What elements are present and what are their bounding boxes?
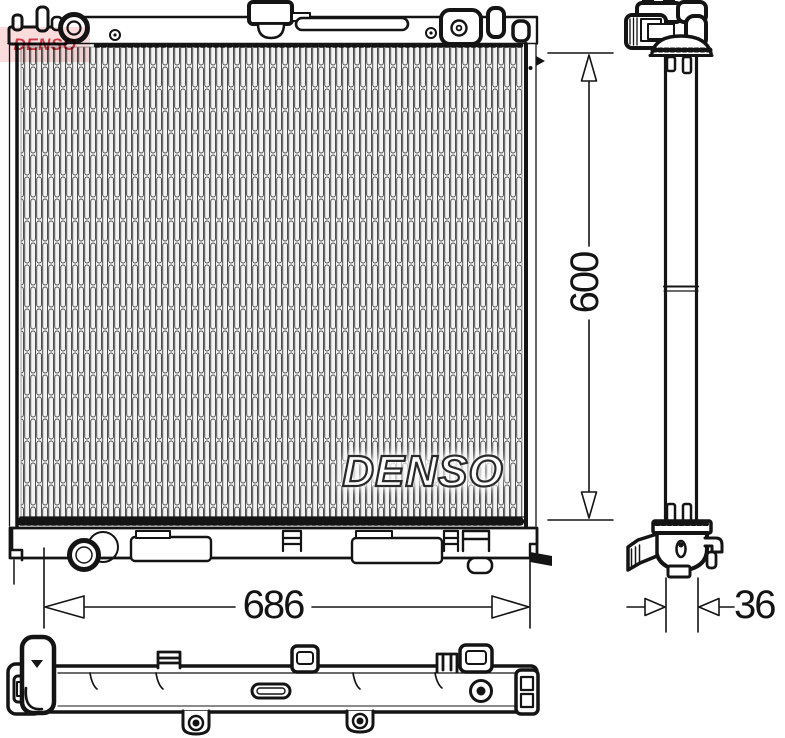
arrowhead-left <box>45 596 84 618</box>
bottom-view <box>8 637 538 734</box>
dim-depth-label: 36 <box>734 585 785 625</box>
dim-depth <box>627 578 734 632</box>
side-view <box>626 0 722 577</box>
denso-brand-watermark: DENSO <box>318 446 528 498</box>
arrowhead-right <box>492 596 529 618</box>
denso-logo-text: DENSO <box>14 36 77 53</box>
denso-logo-watermark: DENSO <box>0 27 90 62</box>
bottom-view-left-tab <box>22 637 54 713</box>
radiator-technical-drawing: 600 686 36 DENSO DENSO <box>0 0 785 738</box>
filler-cap <box>249 2 292 38</box>
dim-height-label: 600 <box>565 238 605 328</box>
arrowhead-depth-left <box>645 599 665 616</box>
bottom-view-clip-d <box>460 645 492 672</box>
bottom-tank <box>10 528 552 584</box>
bottom-view-clip-b <box>292 646 318 672</box>
bottom-view-tab-1 <box>183 711 209 734</box>
arrowhead-depth-right <box>699 599 719 616</box>
dim-width-label: 686 <box>213 585 333 625</box>
side-bottom-outlet <box>628 504 722 577</box>
side-top-inlet <box>626 0 712 73</box>
drawing-canvas <box>0 0 785 738</box>
bottom-view-tab-2 <box>347 711 373 732</box>
tank-slot <box>296 18 408 30</box>
arrowhead-down <box>582 492 597 518</box>
arrowhead-up <box>582 55 597 81</box>
